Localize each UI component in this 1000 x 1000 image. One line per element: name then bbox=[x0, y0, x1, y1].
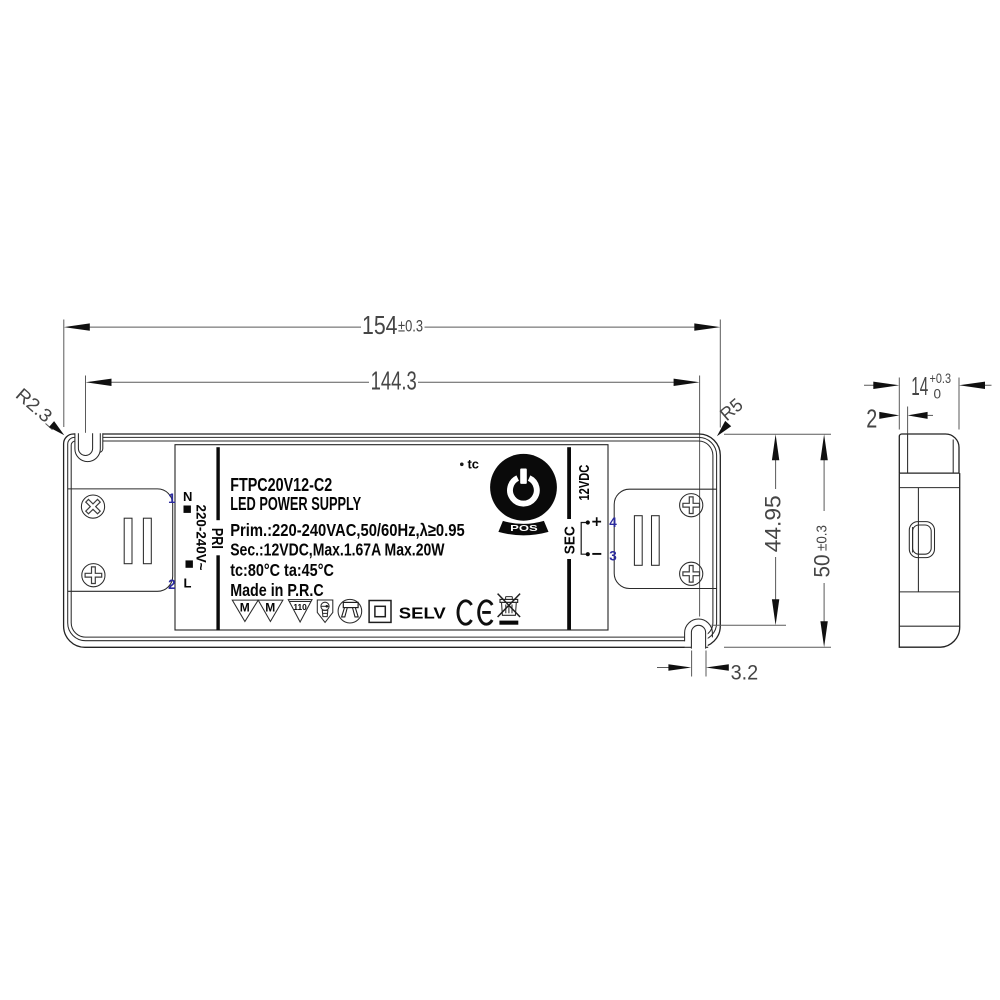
svg-text:M: M bbox=[240, 600, 250, 614]
svg-text:N: N bbox=[183, 489, 192, 504]
svg-text:2: 2 bbox=[866, 403, 877, 433]
svg-text:220-240V~: 220-240V~ bbox=[194, 505, 209, 571]
svg-text:SEC: SEC bbox=[562, 526, 578, 554]
svg-text:14: 14 bbox=[911, 371, 928, 401]
svg-text:3.2: 3.2 bbox=[731, 662, 759, 685]
svg-text:2: 2 bbox=[168, 577, 176, 592]
svg-text:±0.3: ±0.3 bbox=[814, 525, 831, 551]
svg-text:Made in P.R.C: Made in P.R.C bbox=[230, 580, 324, 600]
svg-text:Prim.:220-240VAC,50/60Hz,λ≥0.9: Prim.:220-240VAC,50/60Hz,λ≥0.95 bbox=[230, 520, 465, 540]
svg-text:POS: POS bbox=[510, 524, 538, 533]
svg-text:FTPC20V12-C2: FTPC20V12-C2 bbox=[230, 474, 332, 495]
svg-text:±0.3: ±0.3 bbox=[398, 318, 423, 336]
svg-text:154: 154 bbox=[362, 310, 398, 340]
svg-text:+0.3: +0.3 bbox=[930, 371, 952, 386]
svg-text:PRI: PRI bbox=[208, 528, 225, 549]
svg-text:50: 50 bbox=[809, 555, 834, 578]
svg-text:44.95: 44.95 bbox=[761, 495, 786, 552]
svg-text:12VDC: 12VDC bbox=[577, 465, 593, 501]
svg-text:tc:80°C ta:45°C: tc:80°C ta:45°C bbox=[230, 560, 334, 580]
svg-text:SELV: SELV bbox=[399, 606, 446, 623]
svg-text:4: 4 bbox=[609, 515, 617, 530]
svg-text:Sec.:12VDC,Max.1.67A Max.20W: Sec.:12VDC,Max.1.67A Max.20W bbox=[230, 540, 445, 560]
svg-text:3: 3 bbox=[609, 549, 617, 564]
svg-text:0: 0 bbox=[934, 387, 942, 402]
svg-text:tc: tc bbox=[468, 458, 480, 472]
svg-text:L: L bbox=[184, 575, 192, 590]
svg-text:144.3: 144.3 bbox=[371, 366, 417, 396]
svg-text:1: 1 bbox=[168, 491, 176, 506]
svg-text:110: 110 bbox=[293, 602, 307, 612]
svg-text:LED POWER SUPPLY: LED POWER SUPPLY bbox=[230, 493, 361, 514]
svg-text:M: M bbox=[265, 600, 275, 614]
